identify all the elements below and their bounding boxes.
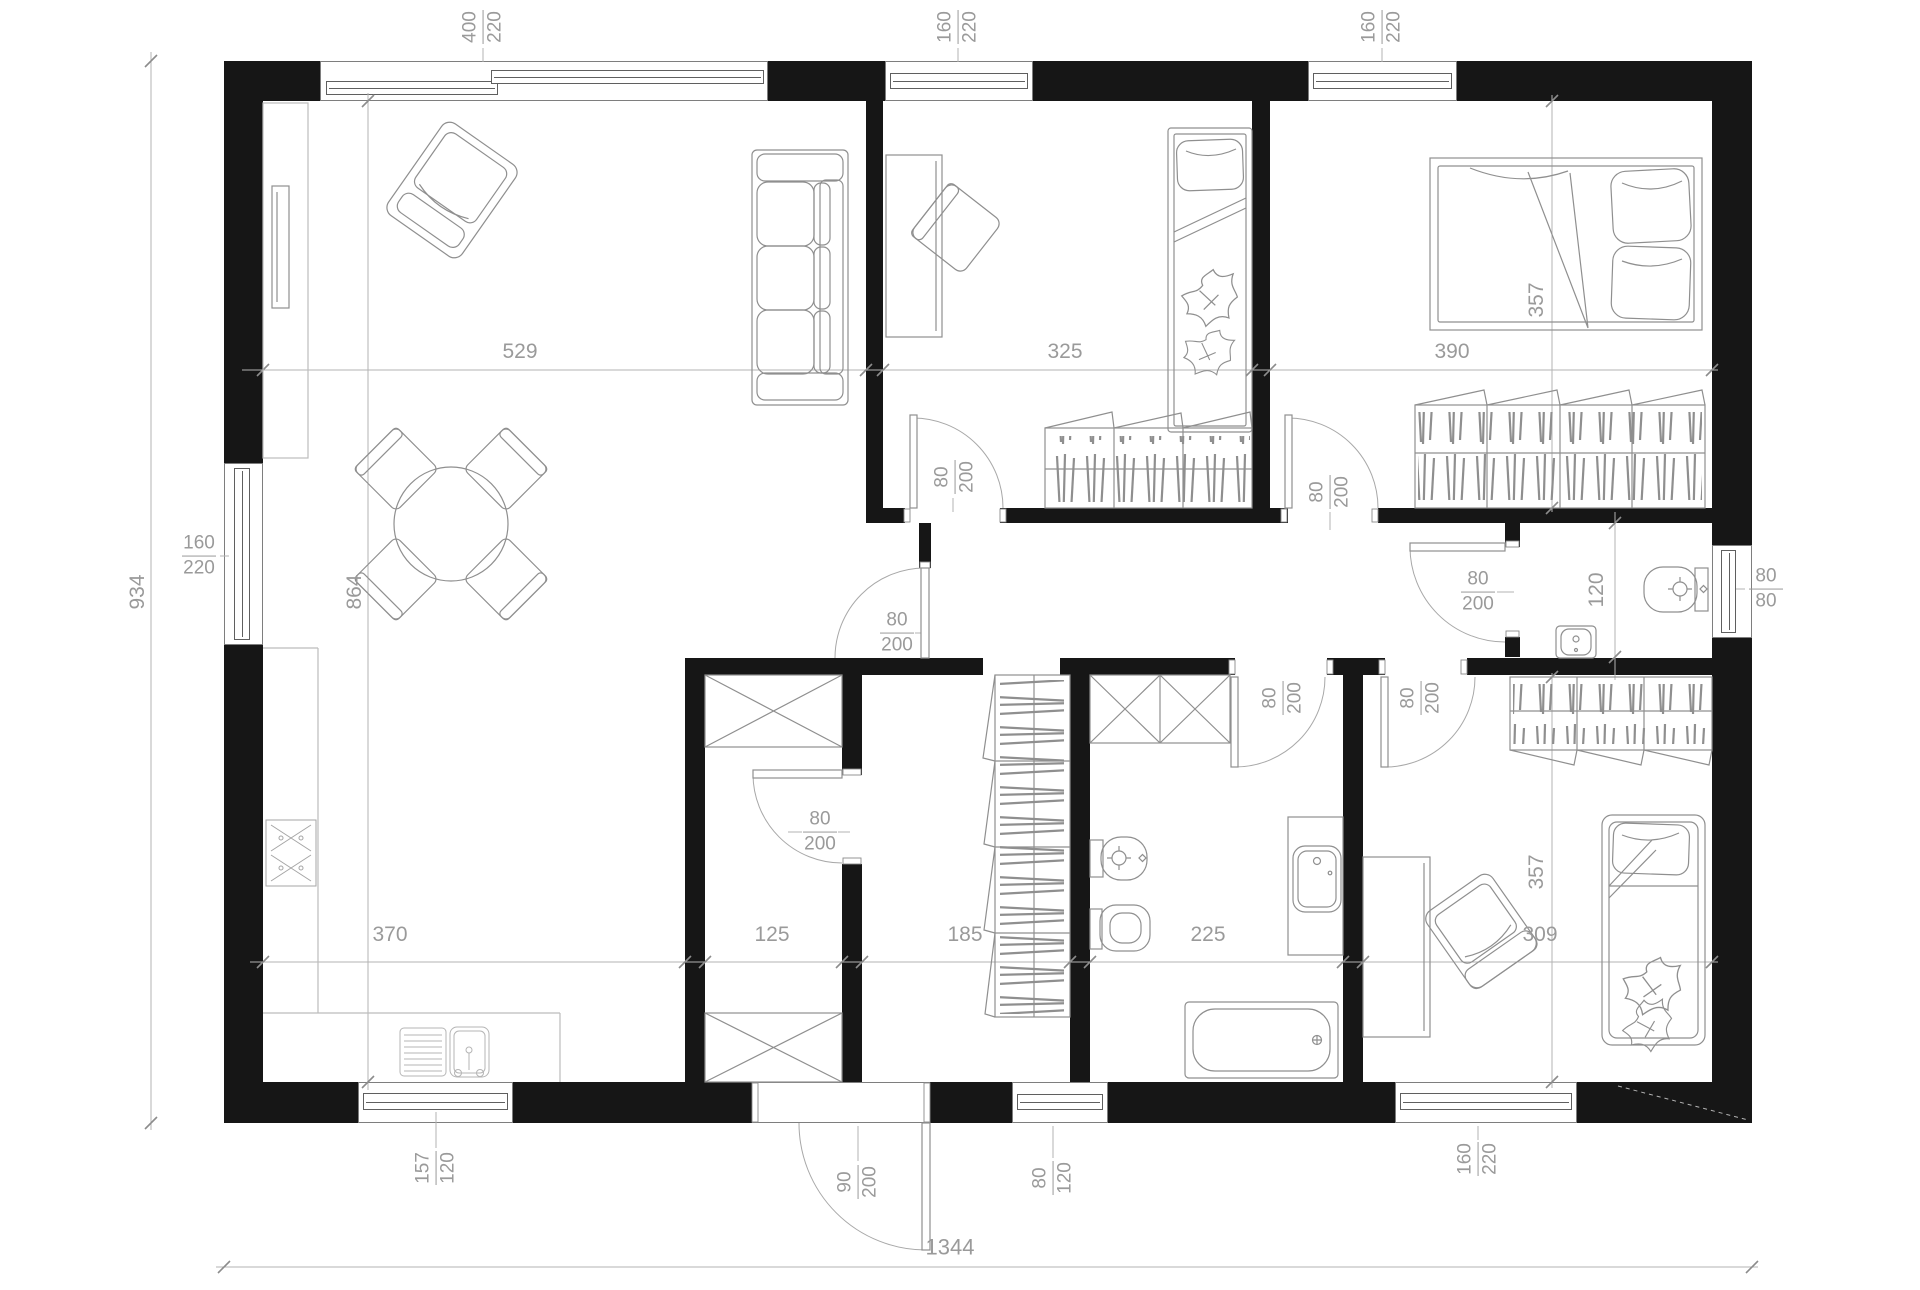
kitchen-counter [263,648,560,1082]
bedroom2-bed [1602,815,1705,1057]
child-chair [910,182,1003,275]
sofa [752,150,848,405]
wc-basin [1556,626,1596,658]
dim-door-master: 80200 [1308,475,1353,509]
master-bed [1430,158,1702,330]
dim-overall-depth: 934 [127,574,149,609]
bathroom-door-leaf [1231,677,1238,767]
floor-plan: 400220 160220 160220 934 160220 864 529 … [0,0,1920,1290]
dim-door-corridor: 80200 [880,611,914,656]
dimension-ticks [145,55,1758,1273]
dim-master-depth: 357 [1526,282,1548,317]
corridor-door-leaf [921,568,929,658]
dim-door-bathroom: 80200 [1261,681,1306,715]
dining-chair [354,537,439,622]
toilet-wc [1644,567,1708,612]
dim-storage-width: 125 [754,924,789,946]
dining-chair [464,427,549,512]
dim-door-bedroom2: 80200 [1399,681,1444,715]
bathroom-cabinet [1090,675,1230,743]
door-jambs [752,509,1519,1122]
dim-master-width: 390 [1434,341,1469,363]
dim-interior-depth: 864 [344,574,366,609]
plan-drawing-overlay [0,0,1920,1290]
dim-living-width: 529 [502,341,537,363]
child-bed [1168,128,1252,432]
dim-window-living-top: 400220 [461,10,506,44]
bedroom2-wardrobe [1510,677,1712,765]
door-leaves [753,415,1505,1250]
dim-hall-width: 185 [947,924,982,946]
dim-bedroom2-width: 309 [1522,924,1557,946]
dim-bedroom2-depth: 357 [1526,854,1548,889]
child-desk [886,155,942,337]
armchair-living [383,118,521,261]
dim-kitchen-width: 370 [372,924,407,946]
dim-window-hall: 80120 [1031,1161,1076,1195]
dim-window-child-top: 160220 [936,10,981,44]
dining-chair [464,537,549,622]
bedroom2-door-leaf [1381,677,1388,767]
kitchen-sink [400,1027,489,1077]
dimension-lines [151,48,1758,1267]
dim-window-living-left: 160220 [182,534,216,579]
master-door-leaf [1285,415,1292,508]
storage-wardrobes [705,675,842,1082]
dim-window-master-top: 160220 [1360,10,1405,44]
dim-door-child: 80200 [933,460,978,494]
bathroom-sink [1288,817,1343,955]
wc-door-leaf [1410,543,1505,551]
dim-window-bedroom2: 160220 [1456,1142,1501,1176]
bathtub [1185,1002,1338,1078]
hall-wardrobe [983,675,1070,1017]
dim-window-wc: 8080 [1749,567,1783,612]
dim-bathroom-width: 225 [1190,924,1225,946]
tv-cabinet [263,103,308,458]
dim-door-storage: 80200 [803,810,837,855]
dining-table [394,467,508,581]
dim-wc-depth: 120 [1586,572,1608,607]
dim-child-width: 325 [1047,341,1082,363]
toilet-bathroom [1090,905,1150,951]
dim-door-entrance: 90200 [836,1165,881,1199]
child-door-leaf [910,415,917,508]
cooktop [266,820,316,886]
dim-overall-width: 1344 [926,1235,975,1258]
master-wardrobe [1415,390,1705,508]
dim-window-kitchen: 157120 [414,1151,459,1185]
bedroom2-desk [1363,857,1430,1037]
dining-chair [354,427,439,512]
door-arcs [753,418,1505,1250]
entrance-door-leaf [922,1123,930,1250]
tv [272,186,289,308]
storage-door-leaf [753,770,842,778]
bidet [1090,837,1147,880]
dim-door-wc: 80200 [1461,570,1495,615]
